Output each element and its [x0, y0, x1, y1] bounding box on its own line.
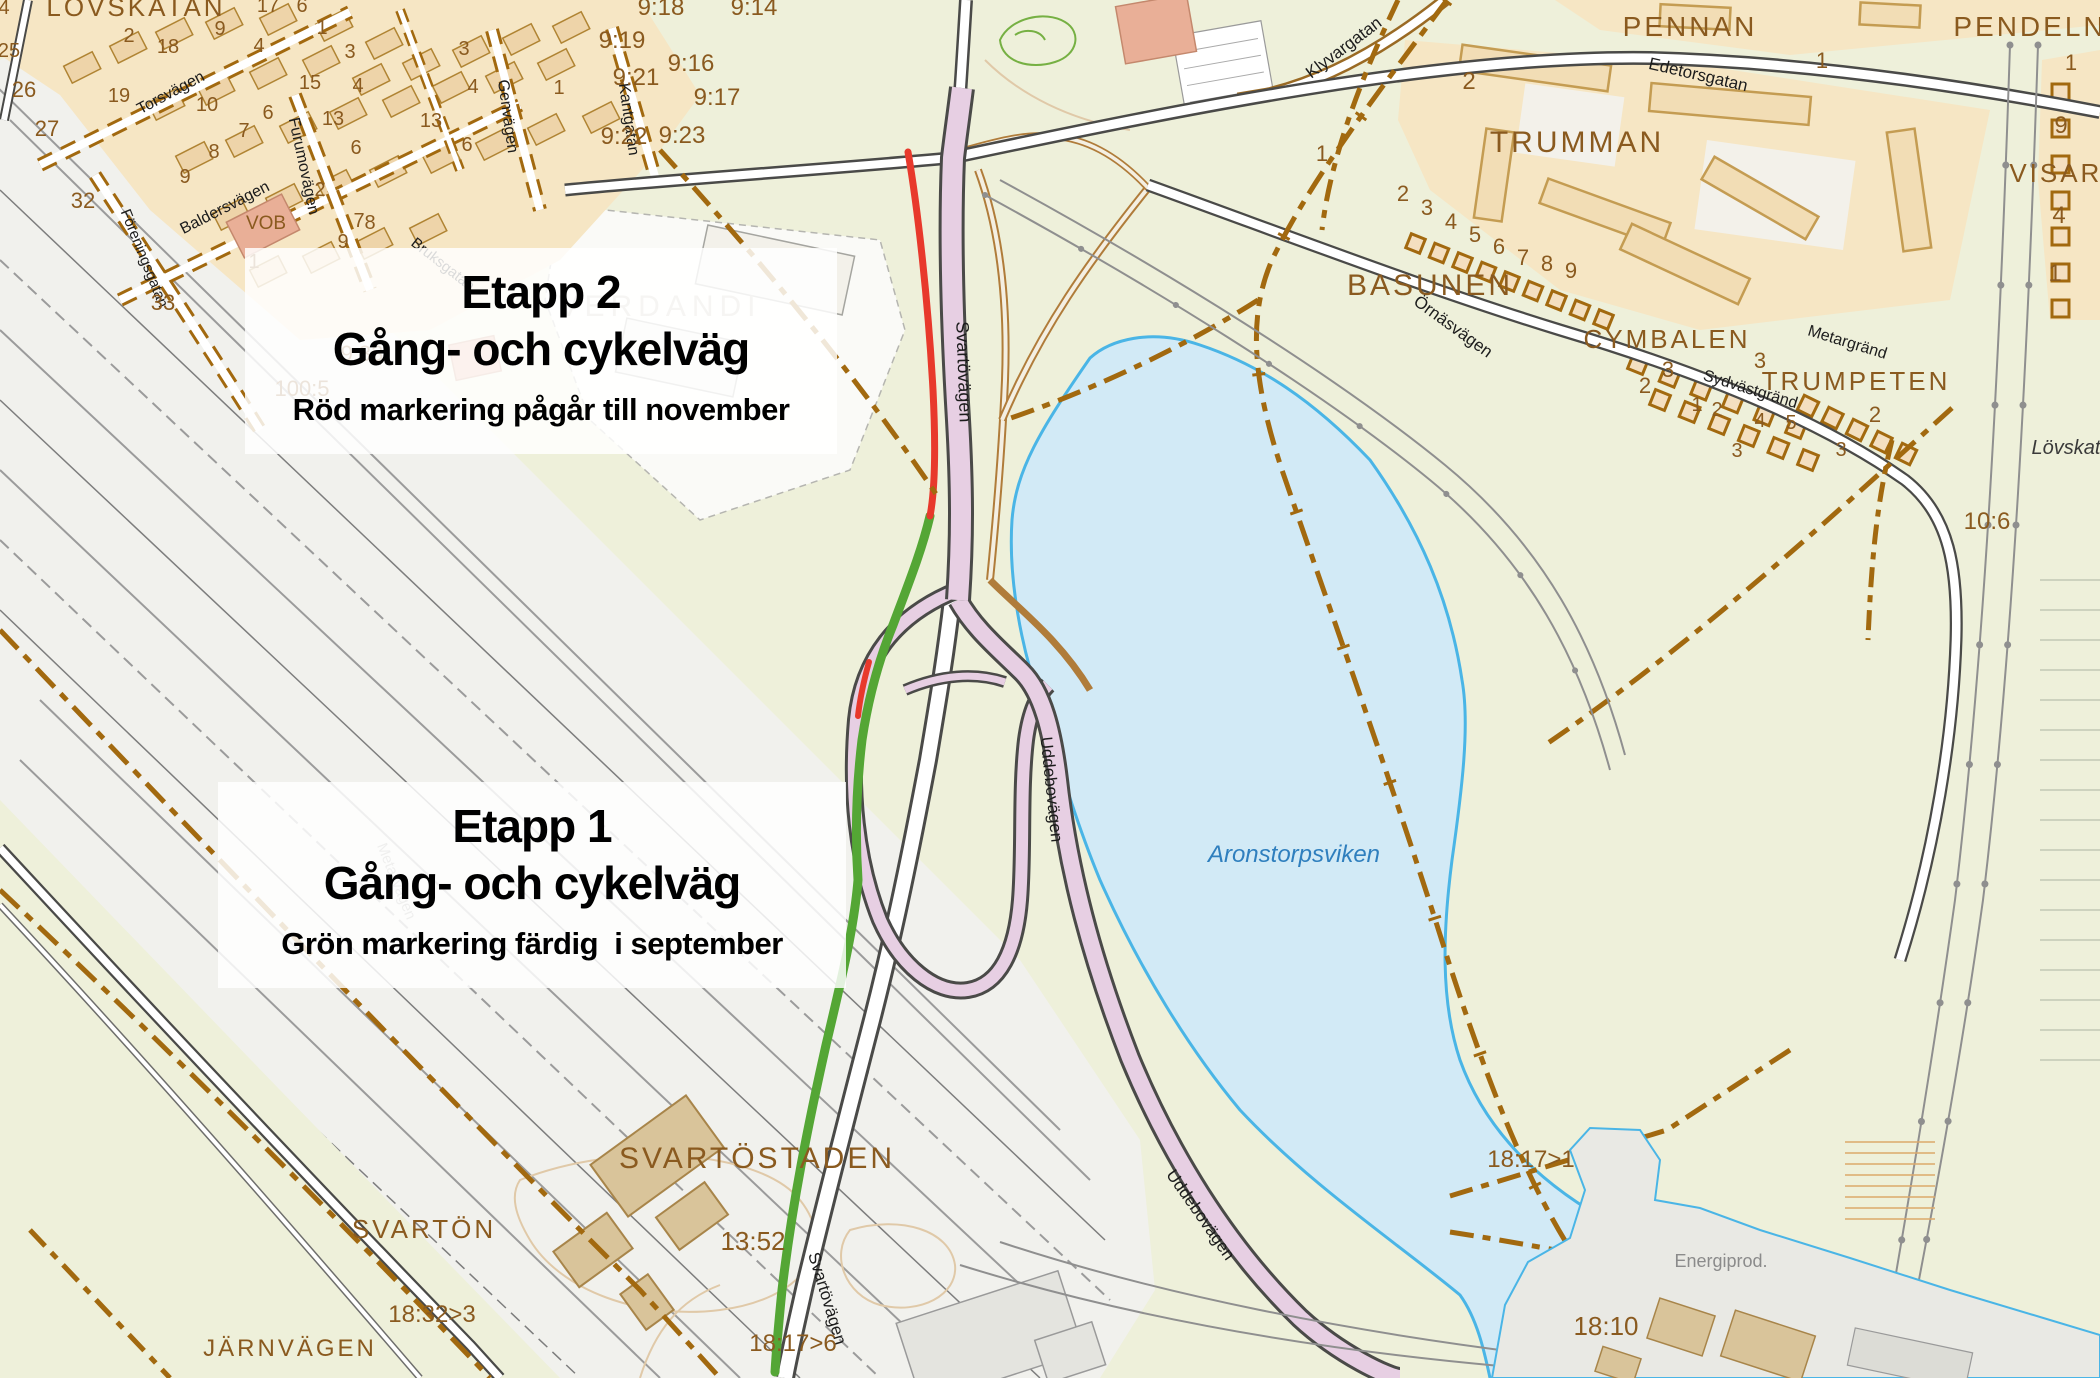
map-label: 19: [108, 85, 130, 107]
map-label: 7: [1517, 245, 1529, 270]
map-label: 9:17: [694, 84, 741, 111]
map-label: 32: [71, 188, 95, 213]
map-label: 1: [316, 17, 327, 39]
map-label: Svartövägen: [952, 321, 976, 423]
map-canvas[interactable]: LÖVSKATANVERDANDISVARTÖSTADENSVARTÖNJÄRN…: [0, 0, 2100, 1378]
map-label: 13: [322, 108, 344, 130]
map-label: 10: [196, 94, 218, 116]
map-label: PENNAN: [1623, 11, 1758, 42]
map-label: 33: [151, 290, 175, 315]
map-label: 10:6: [1964, 508, 2011, 535]
map-label: 3: [1662, 357, 1674, 382]
map-label: 9:22: [601, 123, 648, 150]
map-label: TRUMMAN: [1490, 126, 1664, 159]
map-label: 9:19: [599, 27, 646, 54]
etapp2-detail: Röd markering pågår till november: [245, 392, 837, 428]
map-label: 4: [2052, 202, 2065, 229]
map-label: 4: [352, 75, 363, 97]
map-label: 6: [1493, 234, 1505, 259]
etapp2-info-box: Etapp 2 Gång- och cykelväg Röd markering…: [245, 248, 837, 454]
map-label: VOB: [246, 213, 286, 234]
map-label: Lövskat: [2032, 437, 2100, 459]
map-label: 6: [262, 102, 273, 124]
map-label: 9: [179, 166, 190, 188]
map-label: 9:21: [613, 64, 660, 91]
map-label: 4: [253, 35, 264, 57]
map-label: 1: [1316, 141, 1328, 166]
map-label: 2: [1397, 181, 1409, 206]
map-label: 1: [553, 77, 564, 99]
map-label: 2: [1639, 373, 1651, 398]
map-label: 8: [1541, 251, 1553, 276]
map-label: PENDELN: [1953, 11, 2100, 42]
map-label: 18:10: [1573, 1311, 1638, 1341]
map-label: 18:17>1: [1487, 1146, 1574, 1173]
etapp1-info-box: Etapp 1 Gång- och cykelväg Grön markerin…: [218, 782, 846, 988]
map-label: 7: [353, 210, 364, 232]
map-label: 13:52: [720, 1226, 785, 1256]
map-label: 5: [1469, 222, 1481, 247]
map-label: 4: [1445, 209, 1457, 234]
map-label: 9:18: [638, 0, 685, 21]
map-label: 7: [238, 120, 249, 142]
map-label: Aronstorpsviken: [1206, 841, 1380, 868]
map-label: 5: [1785, 412, 1796, 434]
map-label: 18:17>6: [749, 1330, 836, 1357]
etapp1-subtitle: Gång- och cykelväg: [218, 855, 846, 912]
map-label: 3: [344, 41, 355, 63]
map-label: 15: [299, 72, 321, 94]
etapp2-subtitle: Gång- och cykelväg: [245, 321, 837, 378]
etapp1-detail: Grön markering färdig i september: [218, 926, 846, 962]
etapp1-title: Etapp 1: [218, 798, 846, 855]
map-label: 18: [157, 36, 179, 58]
map-label: 26: [12, 77, 36, 102]
map-label: Energiprod.: [1674, 1251, 1767, 1271]
map-label: 8: [364, 212, 375, 234]
map-label: 1: [1816, 48, 1828, 73]
map-label: 3: [1421, 195, 1433, 220]
map-label: 6: [350, 137, 361, 159]
map-label: 3: [1835, 439, 1846, 461]
map-label: 1: [2048, 260, 2061, 287]
map-label: 3: [1731, 440, 1742, 462]
etapp2-title: Etapp 2: [245, 264, 837, 321]
map-label: 6: [461, 134, 472, 156]
map-label: CYMBALEN: [1583, 324, 1750, 354]
map-label: 4: [0, 0, 10, 19]
map-label: VISARE: [2009, 158, 2100, 188]
map-label: 27: [35, 116, 59, 141]
map-label: 3: [458, 38, 469, 60]
map-label: 2: [123, 25, 134, 47]
map-label: TRUMPETEN: [1762, 366, 1951, 396]
map-label: 25: [0, 40, 20, 62]
map-label: 1: [1691, 394, 1702, 416]
map-label: 18:32>3: [388, 1301, 475, 1328]
map-label: 9:23: [659, 122, 706, 149]
map-label: 4: [1754, 410, 1765, 432]
map-label: 4: [467, 76, 478, 98]
map-label: 3: [1754, 348, 1766, 373]
map-label: 2: [314, 179, 325, 201]
map-label: 8: [208, 141, 219, 163]
map-label: 9: [214, 18, 225, 40]
map-viewport[interactable]: LÖVSKATANVERDANDISVARTÖSTADENSVARTÖNJÄRN…: [0, 0, 2100, 1378]
map-label: 2: [1869, 402, 1881, 427]
map-label: 9: [2054, 112, 2067, 139]
map-label: SVARTÖSTADEN: [619, 1142, 895, 1175]
map-label: 6: [296, 0, 307, 17]
map-label: 13: [420, 110, 442, 132]
map-label: 17: [257, 0, 279, 17]
map-label: 1: [2065, 50, 2077, 75]
map-label: 9:16: [668, 50, 715, 77]
map-label: 9: [1565, 258, 1577, 283]
map-label: 2: [1711, 399, 1722, 421]
map-label: LÖVSKATAN: [46, 0, 225, 22]
map-label: 2: [1462, 68, 1475, 95]
map-label: SVARTÖN: [352, 1214, 496, 1244]
map-label: JÄRNVÄGEN: [203, 1335, 377, 1362]
map-label: 9:14: [731, 0, 778, 21]
